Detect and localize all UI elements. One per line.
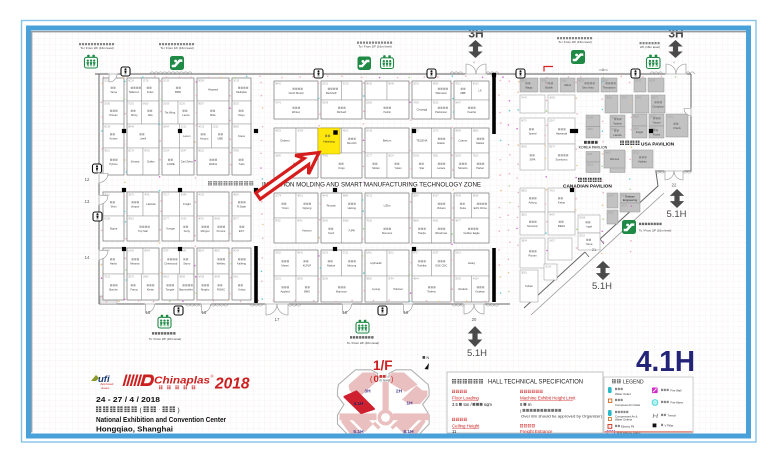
svg-text:Dayu: Dayu	[238, 113, 245, 117]
svg-text:Alfa: Alfa	[148, 113, 153, 117]
svg-text:Welbot: Welbot	[209, 162, 218, 166]
svg-text:14: 14	[85, 255, 90, 260]
svg-text:Woodmax: Woodmax	[435, 231, 448, 235]
svg-text:6E23: 6E23	[578, 79, 584, 82]
svg-text:2G35: 2G35	[163, 79, 170, 82]
svg-text:5F41: 5F41	[636, 96, 642, 99]
svg-text:Floor Loading: Floor Loading	[452, 396, 479, 401]
svg-text:Check: Check	[673, 126, 681, 130]
svg-text:7B22: 7B22	[473, 154, 479, 157]
svg-text:4B66: 4B66	[633, 115, 639, 118]
svg-text:Yizumi: Yizumi	[653, 121, 661, 125]
svg-text:3E81: 3E81	[521, 271, 527, 274]
svg-text:6F70: 6F70	[521, 119, 527, 122]
svg-text:2/F (16m level): 2/F (16m level)	[640, 45, 660, 49]
svg-text:5G36: 5G36	[366, 129, 373, 132]
svg-text:1C51: 1C51	[667, 115, 673, 118]
svg-text:9D20: 9D20	[433, 101, 439, 104]
svg-text:5.1H: 5.1H	[467, 348, 487, 359]
svg-text:Konger: Konger	[166, 227, 175, 231]
svg-text:8B80: 8B80	[473, 129, 479, 132]
svg-text:Yuhao: Yuhao	[238, 288, 246, 292]
svg-text:12: 12	[85, 177, 90, 182]
svg-text:9B24: 9B24	[198, 249, 204, 252]
svg-text:To / From 2/F (16m level): To / From 2/F (16m level)	[80, 46, 114, 50]
svg-text:Toshiba: Toshiba	[417, 264, 427, 268]
svg-text:9B94: 9B94	[343, 194, 349, 197]
svg-text:ABB: ABB	[460, 91, 466, 95]
svg-text:Handa: Handa	[614, 133, 622, 137]
svg-text:Bodrik: Bodrik	[545, 86, 553, 90]
svg-text:Haitian: Haitian	[638, 160, 647, 164]
svg-text:Husky: Husky	[468, 261, 476, 265]
svg-text:): )	[391, 377, 393, 384]
svg-text:): )	[178, 407, 180, 414]
svg-text:2G74: 2G74	[275, 194, 282, 197]
svg-text:Compress Air Outlet: Compress Air Outlet	[615, 403, 640, 407]
svg-text:Bole: Bole	[210, 113, 216, 117]
svg-text:4E65: 4E65	[433, 82, 439, 85]
svg-text:Magic: Magic	[525, 86, 533, 90]
svg-text:3C12: 3C12	[181, 125, 187, 128]
svg-text:Wensui: Wensui	[610, 157, 619, 161]
svg-text:Sino Auto: Sino Auto	[582, 86, 594, 90]
svg-text:7H47: 7H47	[521, 96, 527, 99]
svg-text:Hongqiao, Shanghai: Hongqiao, Shanghai	[96, 427, 173, 434]
svg-text:Shini: Shini	[111, 205, 117, 209]
svg-text:1A97: 1A97	[608, 194, 614, 197]
svg-text:4H87: 4H87	[549, 213, 555, 216]
svg-text:9E24: 9E24	[388, 154, 394, 157]
svg-text:5.1H: 5.1H	[666, 209, 686, 220]
svg-text:Simscom: Simscom	[527, 224, 539, 228]
svg-text:ton /: ton /	[464, 402, 473, 407]
svg-text:4D61: 4D61	[128, 217, 134, 220]
svg-text:Yama: Yama	[110, 90, 117, 94]
svg-text:2C77: 2C77	[366, 154, 372, 157]
svg-text:To / From 2/F (16m level): To / From 2/F (16m level)	[639, 229, 671, 233]
svg-text:8D97: 8D97	[521, 79, 527, 82]
svg-text:2A57: 2A57	[549, 239, 555, 242]
svg-text:Matsui: Matsui	[476, 141, 484, 145]
svg-text:6E74: 6E74	[549, 145, 555, 148]
svg-text:ACME: ACME	[167, 162, 175, 166]
svg-text:Kuhan: Kuhan	[525, 284, 533, 288]
svg-text:Multiplas: Multiplas	[236, 90, 247, 94]
svg-text:National Exhibition and Conven: National Exhibition and Convention Cente…	[96, 417, 226, 424]
svg-text:1E26: 1E26	[455, 154, 461, 157]
svg-text:3G54: 3G54	[297, 129, 304, 132]
svg-text:Unique: Unique	[131, 205, 140, 209]
svg-text:3H99: 3H99	[214, 275, 220, 278]
svg-text:Event: Event	[102, 386, 110, 390]
svg-text:9F41: 9F41	[297, 219, 303, 222]
svg-text:Bekum: Bekum	[383, 139, 392, 143]
svg-text:Sepro: Sepro	[183, 262, 191, 266]
svg-text:Engineering: Engineering	[623, 198, 638, 202]
svg-text:Yizum: Yizum	[281, 206, 289, 210]
svg-text:Liyang: Liyang	[372, 287, 380, 291]
svg-text:FJPA: FJPA	[349, 229, 356, 233]
svg-text:USA PAVILION: USA PAVILION	[641, 141, 675, 147]
svg-text:2D96: 2D96	[322, 277, 328, 280]
svg-text:EAS China: EAS China	[474, 206, 488, 210]
svg-text:Mutung: Mutung	[347, 264, 356, 268]
svg-text:Senara: Senara	[131, 160, 140, 164]
svg-text:8H58: 8H58	[343, 219, 349, 222]
svg-text:3G51: 3G51	[322, 82, 329, 85]
svg-text:4.1H: 4.1H	[636, 346, 695, 378]
svg-text:4D53: 4D53	[275, 129, 281, 132]
svg-text:Wintec: Wintec	[292, 110, 301, 114]
svg-text:4G19: 4G19	[198, 125, 205, 128]
svg-text:To / From 2/F (16m level): To / From 2/F (16m level)	[358, 45, 392, 49]
svg-text:2D11: 2D11	[388, 251, 394, 254]
svg-text:Hispeed: Hispeed	[208, 88, 218, 92]
svg-text:Kaifeng: Kaifeng	[237, 262, 247, 266]
svg-text:To / From 1/F (16m level): To / From 1/F (16m level)	[160, 46, 194, 50]
svg-text:2018: 2018	[214, 376, 250, 393]
svg-text:4B13: 4B13	[343, 129, 349, 132]
svg-text:Minarox: Minarox	[130, 262, 140, 266]
svg-text:4E58: 4E58	[606, 96, 612, 99]
svg-text:3F91: 3F91	[587, 153, 593, 156]
svg-text:Daikin: Daikin	[147, 160, 155, 164]
svg-text:Ningbo: Ningbo	[201, 288, 210, 292]
svg-text:Water Outlet: Water Outlet	[615, 392, 631, 396]
svg-text:Thompson: Thompson	[603, 86, 616, 90]
svg-text:Shiny: Shiny	[131, 113, 138, 117]
svg-text:3B15: 3B15	[521, 213, 527, 216]
svg-text:5D47: 5D47	[181, 149, 187, 152]
svg-text:Siemens: Siemens	[382, 231, 393, 235]
svg-text:Water Outlets: Water Outlets	[615, 418, 633, 422]
svg-text:Arburg: Arburg	[528, 201, 537, 205]
svg-text:Etalon: Etalon	[437, 141, 445, 145]
svg-text:6H94: 6H94	[181, 193, 187, 196]
svg-text:11: 11	[452, 429, 457, 434]
svg-text:2E40: 2E40	[322, 219, 328, 222]
svg-text:Indus: Indus	[147, 90, 154, 94]
svg-text:3C26: 3C26	[179, 102, 185, 105]
svg-text:Mingsu: Mingsu	[201, 229, 210, 233]
svg-text:Lance: Lance	[182, 113, 190, 117]
svg-text:6H72: 6H72	[652, 96, 658, 99]
svg-text:BESA: BESA	[558, 224, 565, 228]
svg-text:Taderic: Taderic	[613, 121, 622, 125]
svg-text:8D22: 8D22	[198, 149, 204, 152]
svg-text:4H77: 4H77	[455, 219, 461, 222]
svg-text:LK: LK	[479, 89, 482, 93]
svg-text:6A51: 6A51	[366, 251, 372, 254]
svg-text:1F97: 1F97	[163, 249, 169, 252]
svg-text:Piovan: Piovan	[528, 254, 537, 258]
svg-text:Tat Wing: Tat Wing	[165, 111, 176, 115]
svg-text:Graham: Graham	[475, 290, 485, 294]
svg-text:Coaran: Coaran	[458, 139, 467, 143]
svg-text:21: 21	[592, 247, 597, 252]
svg-text:6C98: 6C98	[104, 217, 110, 220]
svg-text:7E38: 7E38	[455, 194, 461, 197]
svg-text:9B99: 9B99	[455, 129, 461, 132]
svg-text:7A11: 7A11	[561, 79, 567, 82]
svg-text:RISAC: RISAC	[217, 288, 225, 292]
svg-text:6H54: 6H54	[144, 249, 150, 252]
svg-text:9G99: 9G99	[322, 101, 329, 104]
svg-text:LiZhu: LiZhu	[384, 204, 391, 208]
svg-text:Sumitomo: Sumitomo	[555, 158, 568, 162]
svg-text:3G80: 3G80	[104, 102, 111, 105]
svg-text:Tongde: Tongde	[166, 288, 175, 292]
svg-text:4C65: 4C65	[198, 193, 204, 196]
svg-text:Jinight: Jinight	[183, 202, 191, 206]
svg-text:Hanson: Hanson	[302, 229, 312, 233]
svg-text:5F17: 5F17	[413, 251, 419, 254]
svg-text:2D70: 2D70	[128, 275, 134, 278]
svg-text:9D41: 9D41	[297, 251, 303, 254]
svg-text:3F22: 3F22	[608, 211, 614, 214]
svg-text:7E12: 7E12	[455, 82, 461, 85]
svg-text:3C77: 3C77	[163, 217, 169, 220]
svg-text:TEQSHA: TEQSHA	[416, 139, 427, 143]
svg-text:9C44: 9C44	[233, 249, 239, 252]
svg-text:Rexroth: Rexroth	[347, 141, 357, 145]
svg-text:7C17: 7C17	[163, 193, 169, 196]
svg-text:Kuhan: Kuhan	[110, 137, 118, 141]
svg-text:2D70: 2D70	[635, 79, 641, 82]
svg-text:BMR: BMR	[175, 90, 181, 94]
svg-text:Ruoyan: Ruoyan	[327, 204, 337, 208]
svg-text:8H25: 8H25	[366, 82, 372, 85]
svg-text:5E90: 5E90	[297, 277, 303, 280]
svg-text:7H79: 7H79	[275, 101, 281, 104]
svg-text:9D49: 9D49	[388, 82, 394, 85]
svg-text:9A18: 9A18	[163, 275, 169, 278]
svg-text:1E47: 1E47	[549, 119, 555, 122]
svg-text:UBE: UBE	[217, 137, 223, 141]
svg-text:Verdeck: Verdeck	[458, 287, 468, 291]
svg-text:9D60: 9D60	[602, 79, 608, 82]
svg-text:Electric Pit: Electric Pit	[621, 424, 634, 428]
svg-text:24 - 27 / 4 / 2018: 24 - 27 / 4 / 2018	[96, 397, 160, 404]
svg-text:Chestnood: Chestnood	[164, 262, 178, 266]
svg-text:9F28: 9F28	[144, 149, 150, 152]
svg-text:2H: 2H	[396, 389, 403, 395]
svg-text:Tokimec: Tokimec	[393, 287, 404, 291]
svg-text:4E65: 4E65	[521, 145, 527, 148]
svg-text:17: 17	[275, 317, 280, 322]
svg-text:Fire Alarm: Fire Alarm	[671, 400, 684, 404]
svg-text:9B50: 9B50	[413, 219, 419, 222]
svg-text:Dgteng: Dgteng	[303, 206, 312, 210]
svg-text:Yuanfei: Yuanfei	[467, 110, 476, 114]
svg-text:16: 16	[202, 310, 207, 315]
svg-text:3.5: 3.5	[452, 402, 458, 407]
svg-text:6H66: 6H66	[214, 217, 220, 220]
svg-text:9H67: 9H67	[455, 101, 461, 104]
svg-text:Motan: Motan	[372, 166, 380, 170]
svg-text:Borche: Borche	[109, 288, 118, 292]
svg-text:2C91: 2C91	[633, 151, 639, 154]
svg-text:V Pillar: V Pillar	[665, 423, 674, 427]
svg-text:SIPA: SIPA	[530, 158, 536, 162]
svg-text:7H81: 7H81	[322, 154, 328, 157]
svg-text:8H49: 8H49	[128, 125, 134, 128]
svg-text:5H57: 5H57	[605, 151, 611, 154]
svg-text:3H55: 3H55	[549, 96, 555, 99]
svg-text:4E15: 4E15	[297, 194, 303, 197]
svg-text:sqm: sqm	[484, 402, 492, 407]
svg-text:5F52: 5F52	[275, 219, 281, 222]
svg-text:INJECTION MOLDING AND SMART MA: INJECTION MOLDING AND SMART MANUFACTURIN…	[262, 182, 482, 189]
svg-text:Ingel: Ingel	[586, 225, 592, 229]
svg-text:Speed: Speed	[529, 132, 537, 136]
svg-text:1E91: 1E91	[413, 82, 419, 85]
svg-text:Baumueller: Baumueller	[179, 288, 193, 292]
svg-text:Tederic: Tederic	[427, 290, 436, 294]
svg-text:3A37: 3A37	[621, 204, 627, 207]
svg-text:4F50: 4F50	[198, 217, 204, 220]
svg-text:22: 22	[672, 183, 677, 188]
svg-text:Haixiong: Haixiong	[323, 140, 335, 144]
svg-text:7A90: 7A90	[413, 101, 419, 104]
svg-text:4D11: 4D11	[104, 149, 110, 152]
svg-text:8B52: 8B52	[521, 189, 527, 192]
svg-text:EST: EST	[239, 229, 245, 233]
svg-text:3H94: 3H94	[163, 125, 169, 128]
svg-text:1B90: 1B90	[275, 154, 281, 157]
svg-text:Freight Entrance: Freight Entrance	[520, 429, 553, 434]
svg-text:9G88: 9G88	[579, 216, 586, 219]
svg-text:5B68: 5B68	[233, 125, 239, 128]
svg-text:Trench: Trench	[668, 413, 677, 417]
svg-text:6G39: 6G39	[104, 125, 111, 128]
svg-text:Milacron: Milacron	[129, 90, 140, 94]
svg-text:4C55: 4C55	[649, 79, 655, 82]
svg-text:Star: Star	[419, 166, 424, 170]
svg-text:Pylone: Pylone	[109, 162, 118, 166]
svg-text:2D15: 2D15	[579, 234, 585, 237]
svg-text:Tianjia: Tianjia	[418, 231, 426, 235]
svg-text:Over 8m should be approved by: Over 8m should be approved by Organizer)	[521, 415, 603, 419]
svg-text:Yama: Yama	[586, 242, 593, 246]
svg-text:8C76: 8C76	[128, 149, 134, 152]
svg-text:13: 13	[85, 199, 90, 204]
svg-text:1D19: 1D19	[587, 163, 593, 166]
svg-text:m level: m level	[380, 379, 391, 383]
svg-text:Parkinson: Parkinson	[435, 110, 447, 114]
svg-text:2C61: 2C61	[275, 277, 281, 280]
svg-text:Golden Eagle: Golden Eagle	[463, 231, 480, 235]
svg-text:3H: 3H	[364, 389, 371, 395]
svg-text:Fanuc: Fanuc	[130, 288, 138, 292]
svg-text:4B30: 4B30	[233, 193, 239, 196]
svg-text:Hawanda: Hawanda	[556, 132, 568, 136]
svg-text:9D67: 9D67	[198, 102, 204, 105]
svg-text:5C15: 5C15	[343, 82, 349, 85]
svg-text:18: 18	[343, 310, 348, 315]
svg-text:2G69: 2G69	[163, 102, 170, 105]
svg-text:6H25: 6H25	[143, 102, 149, 105]
svg-text:19: 19	[404, 310, 409, 315]
svg-text:Purone: Purone	[217, 229, 226, 233]
svg-text:Wittmann: Wittmann	[436, 91, 448, 95]
svg-text:Donghua: Donghua	[653, 105, 664, 109]
svg-text:2C92: 2C92	[213, 125, 219, 128]
svg-text:Mahoe: Mahoe	[327, 264, 336, 268]
svg-text:Kietai: Kietai	[147, 288, 154, 292]
svg-text:7C91: 7C91	[128, 102, 134, 105]
svg-text:Fire Wall: Fire Wall	[671, 388, 682, 392]
svg-text:Haixng: Haixng	[348, 206, 357, 210]
svg-text:5E77: 5E77	[233, 217, 239, 220]
svg-text:7B31: 7B31	[433, 154, 439, 157]
svg-text:Kebar: Kebar	[558, 201, 565, 205]
svg-text:1H93: 1H93	[143, 275, 149, 278]
svg-text:8C24: 8C24	[128, 79, 134, 82]
svg-text:Tudo: Tudo	[238, 162, 245, 166]
svg-text:KOREA PAVILION: KOREA PAVILION	[579, 145, 608, 149]
svg-text:Lesun: Lesun	[183, 134, 191, 138]
svg-text:m: m	[528, 402, 532, 407]
svg-text:Kraus: Kraus	[238, 134, 246, 138]
svg-text:3G19: 3G19	[233, 79, 240, 82]
svg-text:0: 0	[374, 374, 379, 385]
svg-text:GSK CNC: GSK CNC	[435, 264, 447, 268]
svg-text:®: ®	[211, 374, 214, 379]
svg-text:2F64: 2F64	[388, 277, 394, 280]
svg-text:1E68: 1E68	[366, 101, 372, 104]
svg-text:5C11: 5C11	[343, 251, 349, 254]
svg-text:3G34: 3G34	[163, 149, 170, 152]
svg-text:9E68: 9E68	[473, 194, 479, 197]
svg-text:To / From 2/F (16m level): To / From 2/F (16m level)	[149, 337, 181, 341]
svg-text:Sorty: Sorty	[184, 229, 191, 233]
svg-text:Kuka: Kuka	[460, 206, 467, 210]
svg-text:Chinaplas: Chinaplas	[154, 376, 210, 387]
svg-text:Engel: Engel	[636, 130, 643, 134]
svg-text:4B20: 4B20	[214, 249, 220, 252]
svg-text:8G13: 8G13	[366, 194, 373, 197]
svg-text:Hydraulik: Hydraulik	[370, 261, 382, 265]
svg-text:Vickers: Vickers	[437, 206, 446, 210]
svg-text:3A52: 3A52	[275, 251, 281, 254]
svg-text:Richard: Richard	[337, 110, 347, 114]
svg-text:To / From 2/F (16m level): To / From 2/F (16m level)	[558, 40, 592, 44]
svg-text:1D19: 1D19	[322, 251, 328, 254]
svg-text:4F91: 4F91	[144, 193, 150, 196]
svg-text:9D98: 9D98	[179, 275, 185, 278]
svg-text:Graham: Graham	[625, 195, 635, 199]
svg-text:Welltec: Welltec	[217, 262, 226, 266]
svg-text:1B82: 1B82	[587, 128, 593, 131]
svg-text:Piovan: Piovan	[109, 113, 118, 117]
svg-text:LEGEND: LEGEND	[623, 380, 644, 386]
svg-text:8D67: 8D67	[413, 194, 419, 197]
svg-text:Parker: Parker	[476, 166, 484, 170]
svg-text:North Mould: North Mould	[289, 91, 304, 95]
svg-text:Jwell: Jwell	[140, 137, 146, 141]
svg-text:Labotek: Labotek	[146, 202, 156, 206]
svg-text:3G96: 3G96	[198, 275, 205, 278]
svg-text:2F91: 2F91	[541, 79, 547, 82]
svg-text:2E39: 2E39	[455, 277, 461, 280]
svg-text:1A45: 1A45	[128, 249, 134, 252]
svg-text:3C70: 3C70	[433, 129, 439, 132]
svg-text:Top Star: Top Star	[138, 229, 148, 233]
svg-text:9D99: 9D99	[198, 79, 204, 82]
svg-text:Harbo: Harbo	[110, 262, 118, 266]
